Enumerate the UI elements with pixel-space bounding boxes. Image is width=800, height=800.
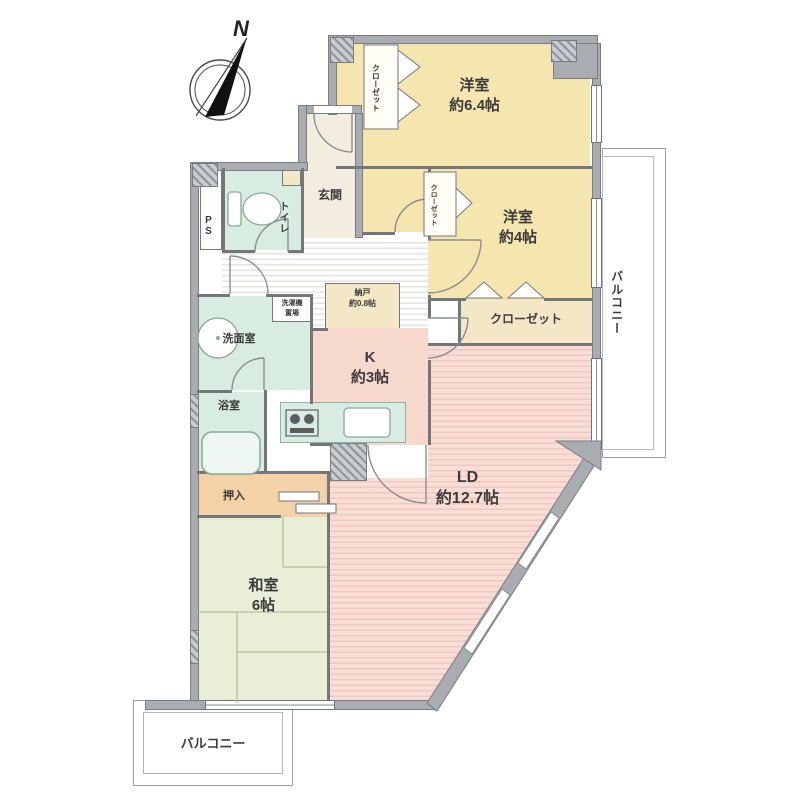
wall-segment: [428, 343, 592, 346]
wall-segment: [362, 232, 395, 235]
wall-segment: [544, 298, 592, 301]
compass: N: [190, 16, 250, 120]
label-balcony-east: バルコニー: [608, 242, 624, 362]
room-label-ld: LD 約12.7帖: [395, 468, 540, 510]
wall-hatch: [190, 630, 199, 664]
wall-segment: [327, 515, 330, 705]
room-size: 約0.8帖: [326, 298, 399, 309]
label-washroom: 洗面室: [203, 332, 275, 346]
floor-plan: N 洋室 約6.4帖 洋室 約4帖 LD 約12.7帖 K 約3帖 和室 6帖 …: [0, 0, 800, 800]
wall-hatch: [330, 37, 354, 63]
wall-segment: [336, 166, 592, 169]
label-closet-west64: クローゼット: [370, 48, 380, 128]
wall-segment: [428, 298, 466, 301]
label-closet-west4: クローゼット: [429, 176, 438, 234]
wall-segment: [301, 168, 304, 253]
room-name: K: [320, 348, 420, 368]
wall-hatch: [192, 163, 218, 187]
wall-segment: [327, 471, 330, 518]
window: [591, 198, 602, 288]
entrance-door-gap: [314, 106, 352, 113]
room-size: 約4帖: [448, 228, 588, 248]
room-size: 約6.4帖: [402, 96, 547, 116]
room-label-western-64: 洋室 約6.4帖: [402, 76, 547, 115]
room-label-japanese: 和室 6帖: [200, 576, 327, 615]
room-name: 洋室: [402, 76, 547, 96]
north-arrow-icon: [205, 37, 247, 117]
room-size: 6帖: [200, 596, 327, 616]
entrance-floor: [304, 113, 355, 238]
room-name: 洋室: [448, 208, 588, 228]
label-balcony-south: バルコニー: [153, 736, 273, 753]
wall-segment: [197, 471, 330, 474]
label-oshiire: 押入: [203, 489, 265, 503]
wall-segment: [222, 168, 225, 253]
wall-hatch: [551, 40, 577, 62]
room-label-kitchen: K 約3帖: [320, 348, 420, 387]
wall-segment: [266, 294, 312, 297]
room-label-western-4: 洋室 約4帖: [448, 208, 588, 247]
room-label-storeroom: 納戸 約0.8帖: [326, 287, 399, 309]
wall-segment: [310, 443, 332, 446]
wall-hatch: [190, 394, 199, 428]
wall-segment: [222, 250, 255, 253]
wall-segment: [264, 390, 267, 473]
wall-entrance-east: [355, 113, 363, 238]
room-name: 納戸: [326, 287, 399, 298]
wall-segment: [197, 390, 232, 393]
label-entrance: 玄関: [304, 188, 356, 204]
room-name: LD: [395, 468, 540, 489]
room-size: 約3帖: [320, 368, 420, 388]
compass-n-label: N: [233, 16, 250, 41]
window: [591, 358, 602, 450]
wall-segment: [197, 515, 281, 518]
label-bathroom: 浴室: [202, 399, 256, 413]
toilet-shelf: [282, 169, 301, 186]
kitchen-counter: [280, 402, 406, 443]
label-pipe-space: PS: [202, 203, 215, 249]
label-laundry: 洗濯機 置場: [273, 299, 311, 319]
wall-segment: [310, 328, 328, 331]
window: [205, 700, 335, 710]
label-closet-hall: クローゼット: [460, 312, 592, 328]
laundry-line2: 置場: [273, 309, 311, 319]
window: [591, 85, 602, 143]
room-size: 約12.7帖: [395, 489, 540, 510]
label-toilet: トイレ: [276, 188, 289, 246]
laundry-line1: 洗濯機: [273, 299, 311, 309]
wall-left: [190, 162, 199, 709]
room-name: 和室: [200, 576, 327, 596]
pillar-hatch: [330, 443, 367, 481]
wall-segment: [310, 330, 313, 404]
wall-segment: [197, 294, 230, 297]
wall-segment: [428, 360, 431, 445]
